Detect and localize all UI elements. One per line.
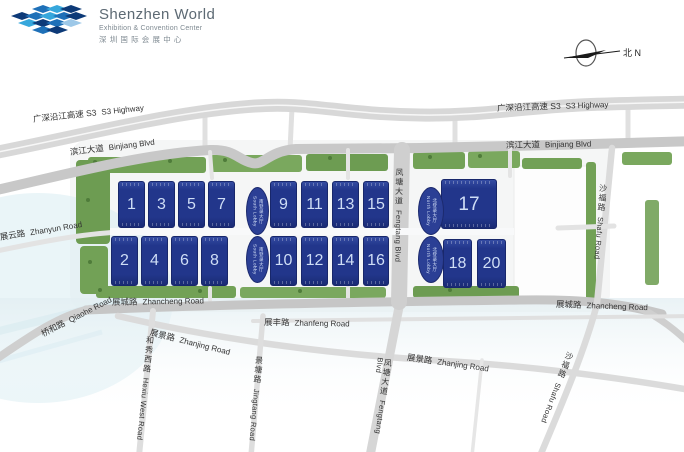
hall-number: 11: [306, 197, 323, 213]
hall-number: 15: [367, 197, 385, 213]
road-label-hexiu: 和秀西路Hexiu West Road: [135, 336, 154, 441]
hall-number: 12: [306, 253, 324, 269]
hall-10: 10: [270, 236, 297, 286]
road-name-zh: 广深沿江高速 S3: [32, 107, 96, 124]
hall-number: 17: [458, 195, 479, 214]
road-label-zhanyun: 展云路Zhanyun Road: [0, 220, 83, 242]
hall-11: 11: [301, 181, 328, 228]
hall-20: 20: [477, 239, 506, 288]
hall-number: 2: [120, 253, 129, 269]
north-lobby: 北登录大厅North Lobby: [418, 187, 444, 235]
road-label-fengtang-mid: 凤塘大道Fengtang Blvd: [393, 168, 403, 262]
road-label-fengtang-south: 凤塘大道Fengtang Blvd: [363, 357, 392, 452]
hall-6: 6: [171, 236, 198, 286]
logo-subtitle-zh: 深圳国际会展中心: [99, 34, 215, 45]
hall-number: 13: [337, 197, 355, 213]
north-lobby: 北登录大厅North Lobby: [418, 236, 444, 283]
hall-number: 3: [157, 197, 166, 213]
road-label-s3-east: 广深沿江高速 S3S3 Highway: [497, 100, 609, 113]
south-lobby: 南登录大厅South Lobby: [246, 236, 269, 283]
hall-number: 14: [337, 253, 355, 269]
north-lobby-label: 北登录大厅North Lobby: [424, 196, 438, 226]
road-label-zhanfeng: 展丰路Zhanfeng Road: [264, 318, 350, 328]
south-lobby: 南登录大厅South Lobby: [246, 187, 269, 235]
road-label-shafu-east: 沙福路Shafu Road: [592, 184, 607, 260]
south-lobby-label: 南登录大厅South Lobby: [251, 196, 265, 227]
road-name-en: S3 Highway: [101, 103, 144, 116]
hall-15: 15: [363, 181, 389, 228]
hall-9: 9: [270, 181, 297, 228]
venue-map-page: 广深沿江高速 S3S3 Highway 广深沿江高速 S3S3 Highway …: [0, 0, 684, 452]
road-label-s3-west: 广深沿江高速 S3S3 Highway: [33, 103, 145, 124]
hall-8: 8: [201, 236, 228, 286]
hall-number: 7: [217, 197, 226, 213]
hall-12: 12: [301, 236, 328, 286]
hall-7: 7: [208, 181, 235, 228]
hall-14: 14: [332, 236, 359, 286]
hall-4: 4: [141, 236, 168, 286]
road-label-zhancheng-west: 展城路Zhancheng Road: [112, 296, 204, 307]
hall-number: 6: [180, 253, 189, 269]
hall-17: 17: [441, 179, 497, 229]
north-compass-icon: 北 N: [558, 32, 670, 78]
hall-3: 3: [148, 181, 175, 228]
road-label-binjiang-east: 滨江大道Binjiang Blvd: [506, 140, 591, 150]
road-label-zhancheng-east: 展城路Zhancheng Road: [556, 300, 648, 312]
logo-subtitle-en: Exhibition & Convention Center: [99, 25, 215, 32]
hall-number: 10: [275, 253, 293, 269]
hall-number: 16: [367, 253, 385, 269]
road-label-zhanjing-east: 展景路Zhanjing Road: [406, 353, 489, 373]
hall-1: 1: [118, 181, 145, 228]
south-lobby-label: 南登录大厅South Lobby: [251, 244, 265, 275]
north-lobby-label: 北登录大厅North Lobby: [424, 244, 438, 274]
hall-5: 5: [178, 181, 205, 228]
hall-number: 8: [210, 253, 219, 269]
hall-2: 2: [111, 236, 138, 286]
hall-number: 18: [449, 256, 467, 272]
compass-label: 北 N: [623, 48, 641, 58]
logo: Shenzhen World Exhibition & Convention C…: [8, 5, 215, 45]
hall-number: 5: [187, 197, 196, 213]
hall-number: 20: [483, 256, 501, 272]
road-label-binjiang-west: 滨江大道Binjiang Blvd: [69, 138, 155, 157]
hall-18: 18: [443, 239, 472, 288]
hall-13: 13: [332, 181, 359, 228]
hall-16: 16: [363, 236, 389, 286]
hall-number: 9: [279, 197, 288, 213]
logo-title: Shenzhen World: [99, 7, 215, 23]
hall-number: 4: [150, 253, 159, 269]
road-label-qiaohe: 桥和路Qiaohe Road: [40, 295, 113, 338]
hall-number: 1: [127, 197, 136, 213]
road-label-shafu-south: 沙福路Shafu Road: [539, 351, 573, 424]
road-label-zhanjing-west: 展景路Zhanjing Road: [149, 328, 231, 357]
logo-mark-icon: [8, 5, 88, 39]
road-label-jingtang: 景塘路Jingtang Road: [248, 356, 263, 441]
